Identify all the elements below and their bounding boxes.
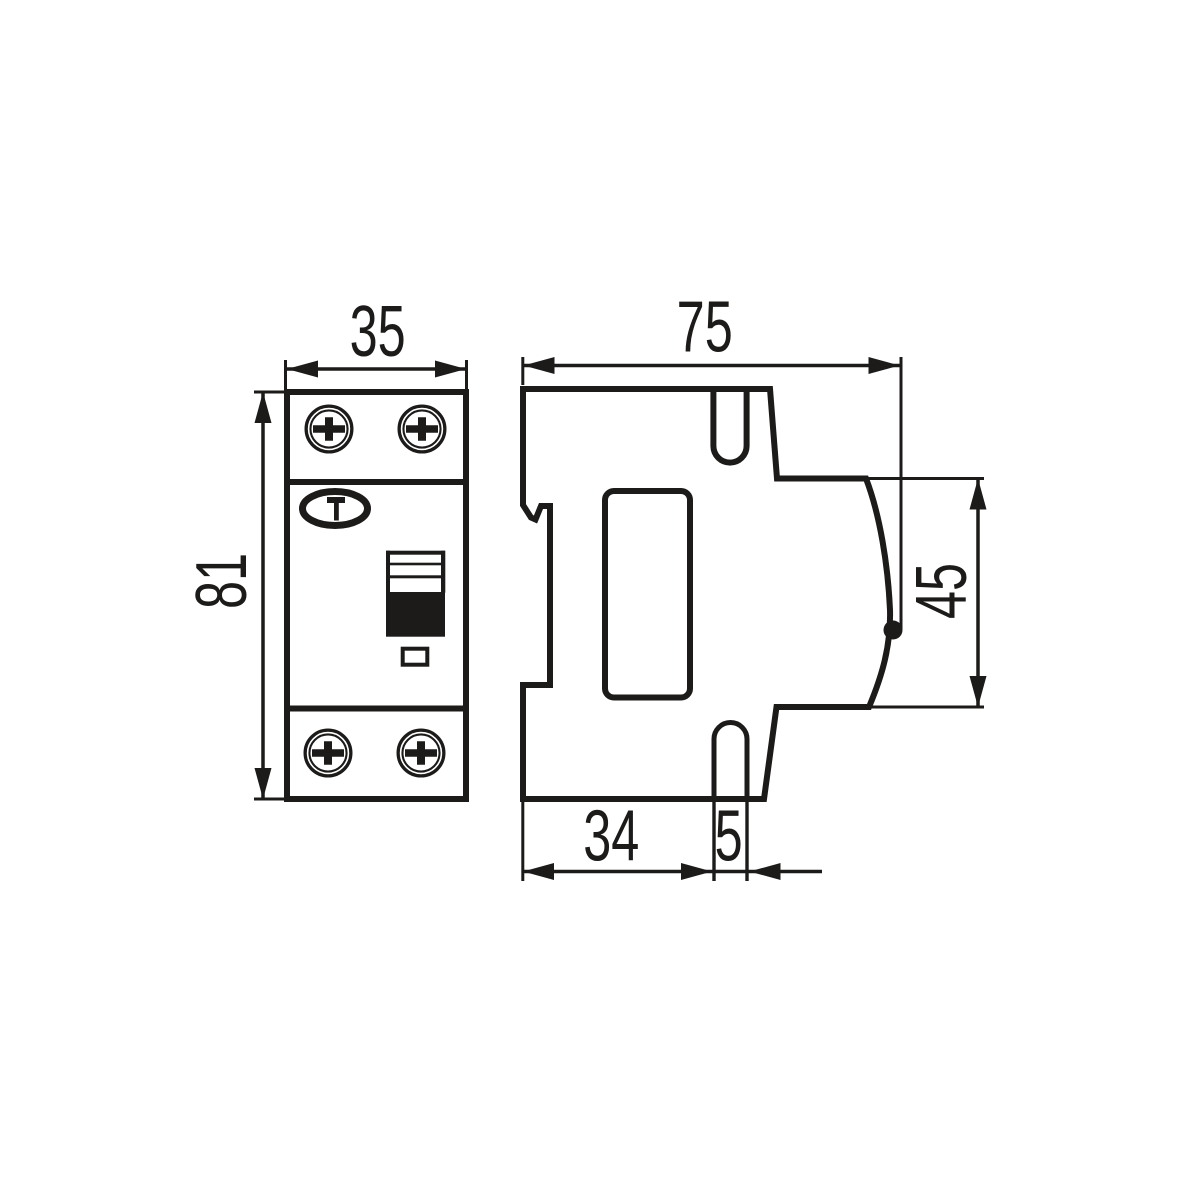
svg-text:81: 81: [182, 553, 262, 609]
svg-text:75: 75: [677, 288, 733, 368]
svg-text:34: 34: [583, 797, 639, 877]
svg-text:5: 5: [715, 797, 743, 877]
svg-text:35: 35: [350, 292, 406, 372]
svg-text:45: 45: [902, 563, 982, 619]
